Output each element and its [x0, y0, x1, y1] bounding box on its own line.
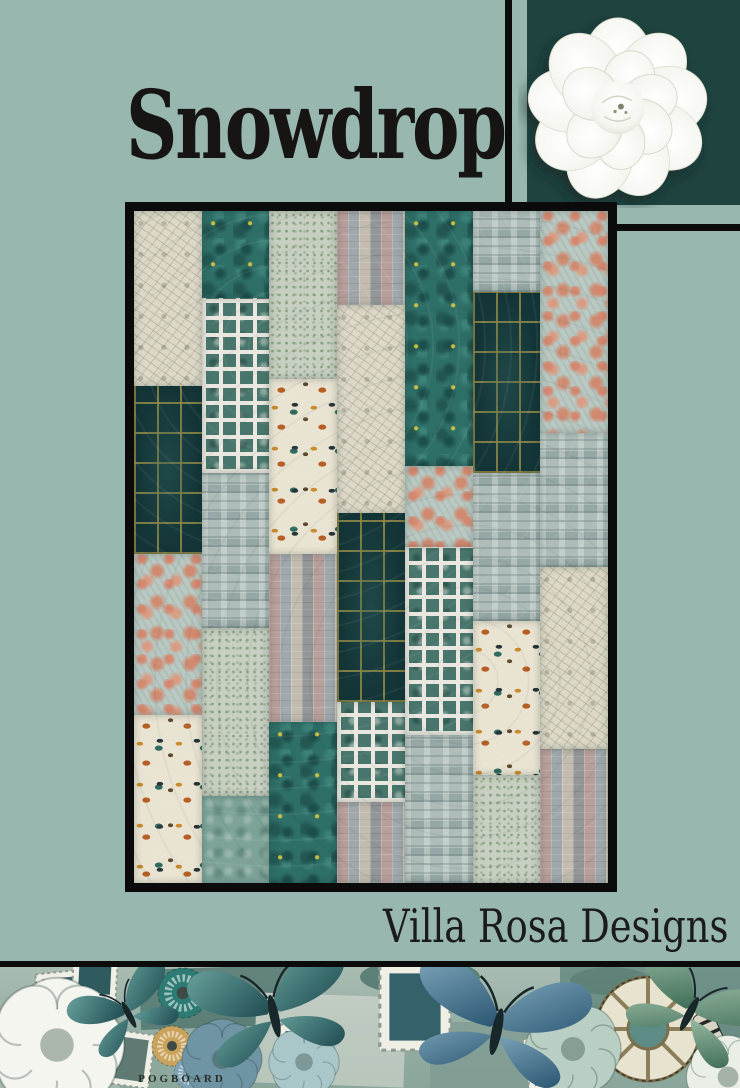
quilt-patch-stamps: [337, 211, 405, 305]
brand-name: Villa Rosa Designs: [383, 899, 728, 953]
quilt-patch-coral: [405, 466, 473, 547]
quilt-column: [134, 211, 202, 883]
quilt-patches: [134, 211, 608, 883]
pattern-cover: Snowdrop Villa Rosa Designs: [0, 0, 740, 1088]
quilt-patch-ditsy: [202, 628, 270, 796]
quilt-patch-stamps: [269, 554, 337, 722]
quilt-column: [202, 211, 270, 883]
footer-collage-art: POGBOARD: [0, 967, 740, 1088]
quilt-column: [405, 211, 473, 883]
quilt-patch-butterfly: [134, 715, 202, 883]
quilt-patch-whitegrid: [337, 702, 405, 803]
quilt-column: [473, 211, 541, 883]
quilt-patch-stamps: [540, 749, 608, 883]
quilt-patch-plaid: [473, 292, 541, 473]
vertical-divider-rule: [505, 0, 512, 211]
quilt-patch-collage: [540, 433, 608, 567]
quilt-patch-whitegrid: [405, 547, 473, 735]
quilt-patch-sketch: [540, 567, 608, 748]
quilt-patch-coral: [134, 554, 202, 715]
ephemera-text: POGBOARD: [138, 1073, 226, 1085]
quilt-patch-stamps: [337, 802, 405, 883]
quilt-patch-sketch: [337, 305, 405, 513]
quilt-patch-coral: [540, 211, 608, 433]
quilt-patch-marble: [269, 722, 337, 883]
quilt-patch-plaid: [134, 386, 202, 554]
quilt-column: [337, 211, 405, 883]
quilt-patch-collage: [202, 473, 270, 628]
quilt-patch-sketch: [134, 211, 202, 386]
quilt-patch-marble: [202, 211, 270, 298]
quilt-patch-plaid: [337, 513, 405, 701]
quilt-patch-butterfly: [269, 379, 337, 554]
quilt-patch-collage: [473, 211, 541, 292]
page-title: Snowdrop: [126, 74, 505, 179]
quilt-patch-collage: [473, 473, 541, 621]
quilt-patch-marble: [405, 211, 473, 466]
quilt-column: [540, 211, 608, 883]
quilt-patch-seafoam: [202, 796, 270, 883]
quilt-patch-butterfly: [473, 621, 541, 776]
horizontal-rule-right: [611, 224, 740, 231]
white-flower-image: [518, 16, 718, 208]
quilt-patch-ditsy: [473, 775, 541, 883]
quilt-column: [269, 211, 337, 883]
flower-petals: [522, 18, 714, 208]
quilt-patch-whitegrid: [202, 298, 270, 473]
quilt-patch-ditsy: [269, 211, 337, 379]
footer-collage-strip: POGBOARD: [0, 961, 740, 1088]
quilt-photo: [125, 202, 617, 892]
quilt-patch-collage: [405, 735, 473, 883]
